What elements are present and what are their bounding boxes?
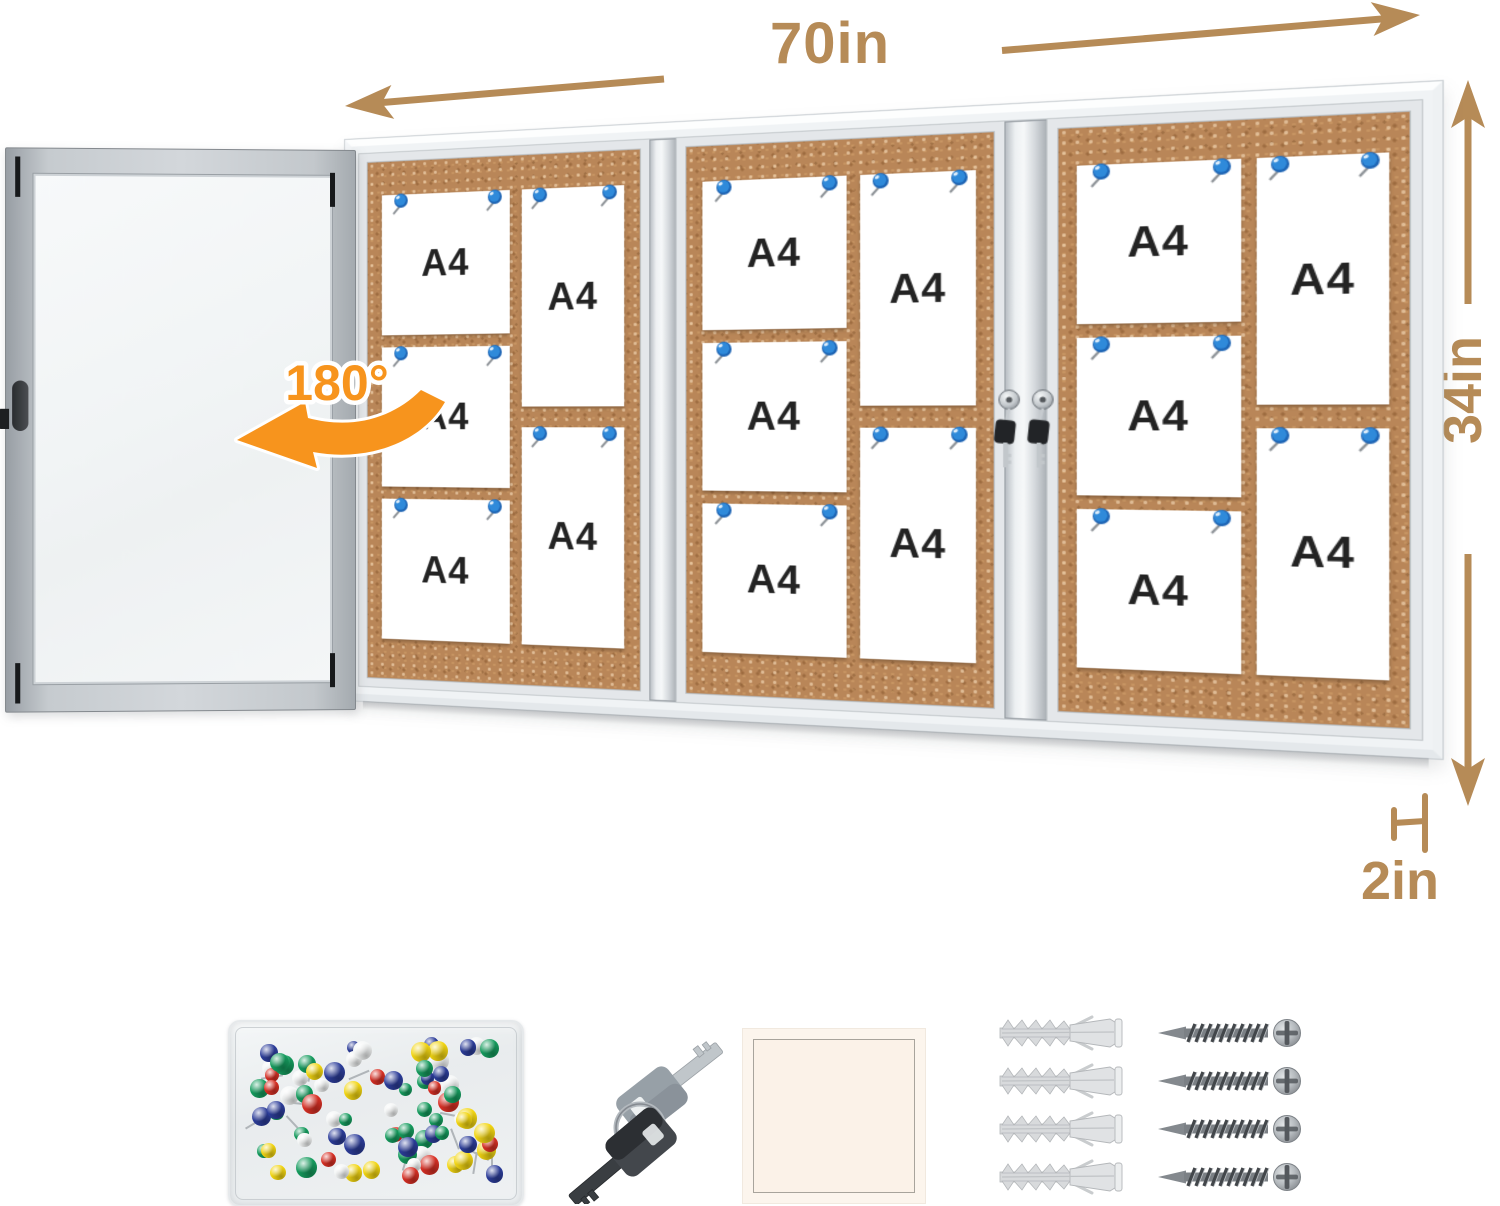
push-pin-icon <box>866 170 891 199</box>
push-pin-icon <box>1085 506 1112 535</box>
wall-anchors <box>994 1014 1136 1196</box>
a4-paper: A4 <box>1257 428 1389 680</box>
push-pin-icon <box>1264 425 1293 455</box>
a4-paper-label: A4 <box>889 265 946 313</box>
screw-icon <box>1156 1014 1312 1052</box>
pushpin-box <box>228 1020 524 1206</box>
adhesive-pad <box>742 1028 926 1204</box>
a4-paper: A4 <box>702 504 847 658</box>
push-pin-icon <box>1353 149 1383 180</box>
wall-anchor-icon <box>994 1062 1136 1100</box>
a4-paper: A4 <box>1077 159 1242 324</box>
a4-paper-label: A4 <box>421 549 469 593</box>
push-pin-icon <box>944 424 970 452</box>
a4-paper: A4 <box>1257 152 1389 404</box>
push-pin-icon <box>1205 332 1233 362</box>
a4-paper: A4 <box>1077 509 1242 674</box>
a4-paper: A4 <box>702 176 847 330</box>
push-pin-icon <box>482 342 504 368</box>
a4-paper: A4 <box>861 170 976 406</box>
door-corner-clip <box>330 653 335 687</box>
door-locks-with-keys <box>991 384 1061 498</box>
a4-paper-label: A4 <box>1290 527 1355 578</box>
screw-icon <box>1156 1158 1312 1196</box>
push-pin-icon <box>388 191 409 217</box>
panel-right-column: A4A4 <box>1257 152 1389 680</box>
lock-icon <box>994 390 1020 467</box>
push-pin-icon <box>709 501 733 528</box>
a4-paper-label: A4 <box>747 230 801 277</box>
panel-divider <box>1004 119 1047 720</box>
a4-paper-label: A4 <box>889 520 946 568</box>
a4-paper: A4 <box>382 499 510 644</box>
a4-paper-label: A4 <box>548 274 598 319</box>
pushpin-box-rim <box>235 1027 517 1200</box>
door-lock-knob <box>0 409 9 429</box>
a4-paper: A4 <box>1077 335 1242 497</box>
mounting-screws <box>1156 1014 1312 1196</box>
lock-icon <box>1027 390 1053 468</box>
a4-paper: A4 <box>382 190 510 335</box>
push-pin-icon <box>1205 508 1233 538</box>
push-pin-icon <box>1085 161 1112 191</box>
keys-icon <box>566 1012 734 1204</box>
product-diagram: 70in 34in 2in 180° A4A4A4A4A4A4A4A4A4A4 <box>0 0 1500 1206</box>
height-dimension-arrow <box>1438 62 1498 814</box>
screw-icon <box>1156 1110 1312 1148</box>
a4-paper: A4 <box>702 341 847 493</box>
a4-paper-label: A4 <box>1127 217 1189 267</box>
door-corner-clip <box>15 156 20 196</box>
wall-anchor-icon <box>994 1014 1136 1052</box>
push-pin-icon <box>815 502 840 530</box>
push-pin-icon <box>866 424 891 452</box>
a4-paper-label: A4 <box>1127 392 1189 441</box>
push-pin-icon <box>815 338 840 366</box>
door-swing-annotation: 180° <box>215 338 480 486</box>
door-swing-label: 180° <box>285 355 388 411</box>
panel-right-column: A4A4 <box>861 170 976 663</box>
screw-icon <box>1156 1062 1312 1100</box>
push-pin-icon <box>1205 156 1233 186</box>
panel-right-column: A4A4 <box>522 185 624 649</box>
a4-paper-label: A4 <box>548 515 598 560</box>
depth-dimension-bracket <box>1378 786 1442 860</box>
push-pin-icon <box>1264 153 1293 184</box>
push-pin-icon <box>815 173 840 201</box>
push-pin-icon <box>709 177 733 205</box>
panel-left-column: A4A4A4 <box>702 176 847 658</box>
a4-paper-label: A4 <box>1290 254 1355 305</box>
push-pin-icon <box>1353 425 1383 455</box>
a4-paper: A4 <box>861 428 976 664</box>
bulletin-board-cabinet: A4A4A4A4A4A4A4A4A4A4 A4A4A4A4 <box>345 81 1442 759</box>
push-pin-icon <box>482 187 504 214</box>
push-pin-icon <box>596 424 619 450</box>
push-pin-icon <box>596 182 619 209</box>
a4-paper: A4 <box>522 427 624 648</box>
wall-anchor-icon <box>994 1110 1136 1148</box>
cork-panel-2: A4A4A4A4A4 <box>677 122 1005 719</box>
push-pin-icon <box>527 185 549 212</box>
door-corner-clip <box>15 663 20 703</box>
push-pin-icon <box>1085 334 1112 363</box>
push-pin-icon <box>482 497 504 523</box>
a4-paper-label: A4 <box>421 241 469 285</box>
push-pin-icon <box>388 496 409 522</box>
cork-panel-3: A4A4A4A4A4 <box>1048 100 1422 739</box>
push-pin-icon <box>709 339 733 366</box>
panel-divider <box>649 138 676 702</box>
a4-paper-label: A4 <box>747 556 801 603</box>
push-pin-icon <box>527 424 549 450</box>
wall-anchor-icon <box>994 1158 1136 1196</box>
a4-paper-label: A4 <box>747 394 801 440</box>
panel-left-column: A4A4A4 <box>1077 159 1242 675</box>
adhesive-pad-inner <box>753 1039 915 1193</box>
door-lock-handle <box>12 381 28 431</box>
door-corner-clip <box>330 173 335 207</box>
a4-paper-label: A4 <box>1127 566 1189 616</box>
cabinet-panels: A4A4A4A4A4A4A4A4A4A4 A4A4A4A4 <box>359 100 1422 739</box>
a4-paper: A4 <box>522 185 624 406</box>
push-pin-icon <box>944 167 970 196</box>
